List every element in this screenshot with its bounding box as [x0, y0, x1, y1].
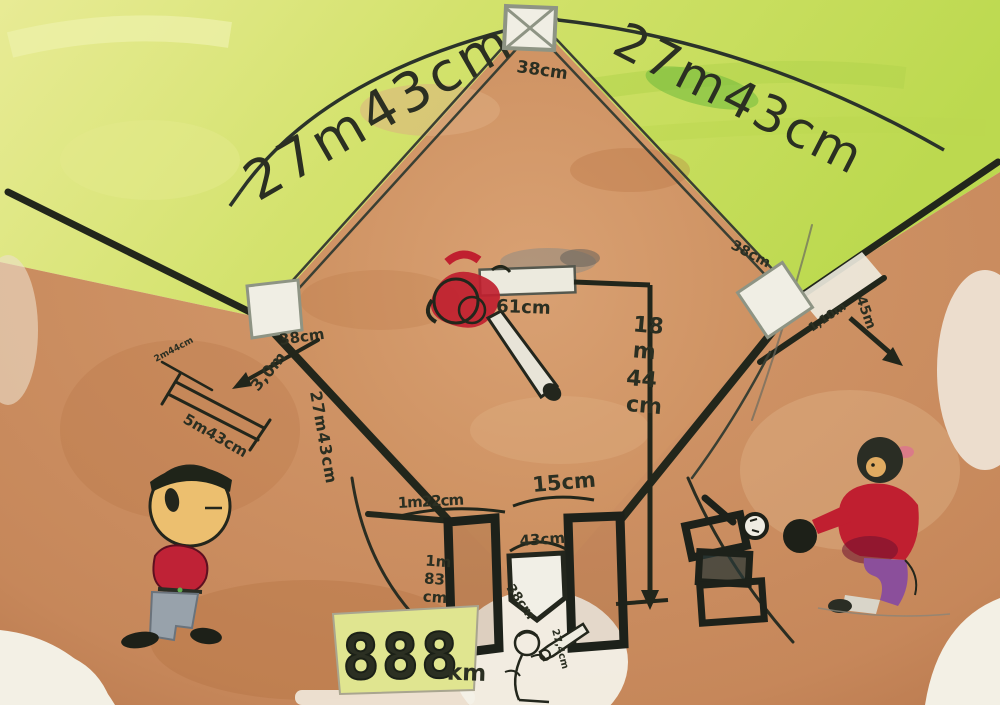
label-pitch-dist-1: 18: [632, 312, 665, 340]
scoreboard: 888 km: [333, 606, 487, 694]
scoreboard-unit: km: [446, 660, 486, 687]
label-pitch-dist-2: m: [632, 338, 657, 365]
painting-canvas: 27m43cm 27m43cm 38cm 38cm 38cm: [0, 0, 1000, 705]
label-home-plate-width: 43cm: [519, 529, 566, 550]
scoreboard-digits: 888: [341, 619, 460, 694]
catcher-mitt: [783, 519, 817, 553]
right-player-face: [866, 457, 886, 477]
left-player-shirt: [153, 545, 207, 593]
baseball: [743, 514, 767, 538]
label-pitcher-plate: 61cm: [496, 296, 551, 319]
baseball-field-drawing: 27m43cm 27m43cm 38cm 38cm 38cm: [0, 0, 1000, 705]
label-pitch-dist-4: cm: [625, 392, 663, 420]
label-batter-box-width: 1m22cm: [397, 491, 464, 512]
label-box-depth-1: 1m: [425, 552, 452, 572]
label-box-depth-2: 83: [423, 569, 445, 588]
label-box-depth-3: cm: [422, 587, 448, 607]
label-pitch-dist-3: 44: [625, 366, 658, 394]
